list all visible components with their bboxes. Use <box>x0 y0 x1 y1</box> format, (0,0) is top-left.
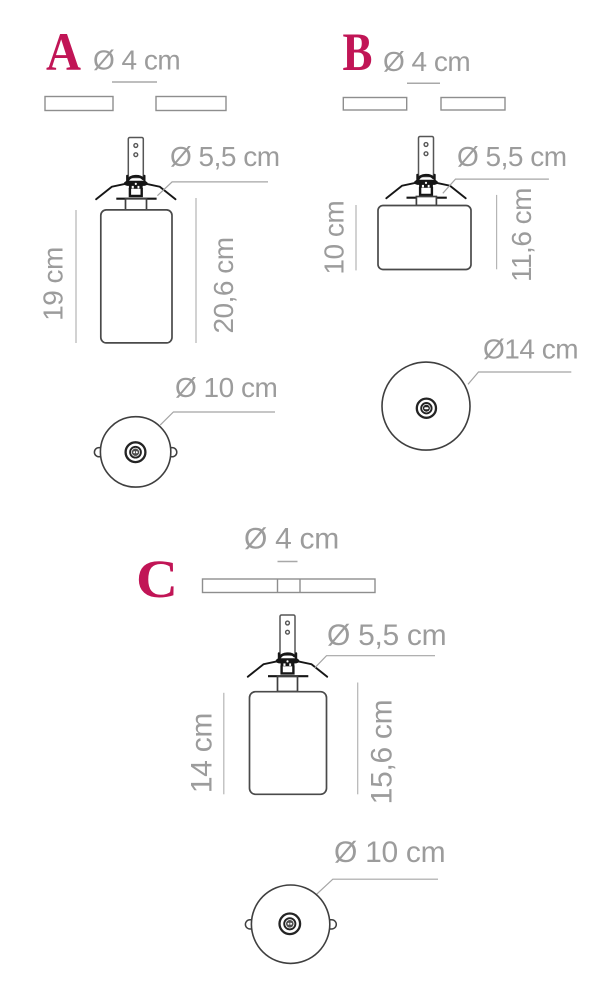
svg-text:Ø 4 cm: Ø 4 cm <box>244 523 339 556</box>
svg-text:B: B <box>343 22 373 82</box>
svg-text:Ø 5,5 cm: Ø 5,5 cm <box>327 619 446 652</box>
svg-text:Ø 4 cm: Ø 4 cm <box>93 45 180 76</box>
svg-text:Ø 10 cm: Ø 10 cm <box>334 836 445 869</box>
svg-text:Ø14 cm: Ø14 cm <box>483 334 578 365</box>
svg-text:C: C <box>136 549 178 609</box>
svg-text:Ø 10 cm: Ø 10 cm <box>175 372 277 403</box>
svg-text:11,6 cm: 11,6 cm <box>506 188 537 282</box>
svg-text:15,6 cm: 15,6 cm <box>366 700 399 805</box>
svg-text:20,6 cm: 20,6 cm <box>208 237 239 333</box>
svg-text:19 cm: 19 cm <box>38 247 69 321</box>
svg-text:10 cm: 10 cm <box>319 201 350 275</box>
svg-text:A: A <box>46 22 81 82</box>
svg-text:Ø 5,5 cm: Ø 5,5 cm <box>170 141 280 172</box>
svg-text:Ø 5,5 cm: Ø 5,5 cm <box>457 141 567 172</box>
svg-text:14 cm: 14 cm <box>186 713 219 793</box>
svg-text:Ø 4 cm: Ø 4 cm <box>383 46 470 77</box>
